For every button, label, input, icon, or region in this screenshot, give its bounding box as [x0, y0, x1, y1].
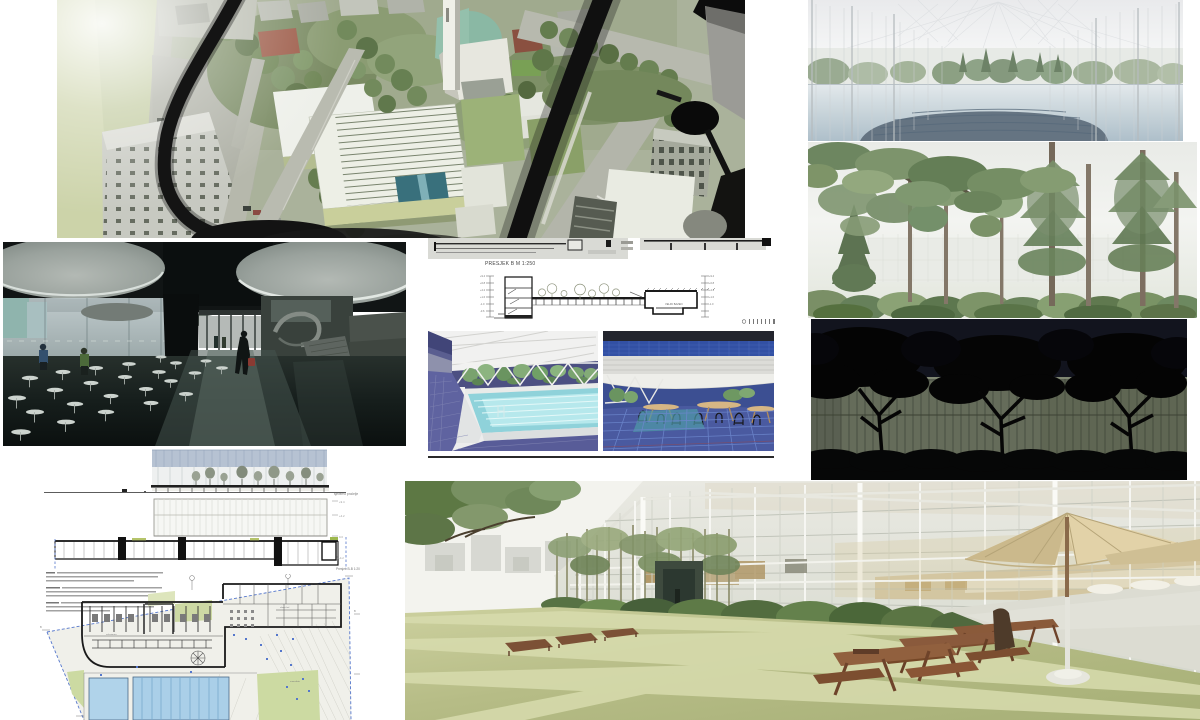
svg-text:+4.2: +4.2 [339, 514, 345, 518]
svg-text:-4.2: -4.2 [339, 556, 344, 560]
svg-text:suncalista: suncalista [290, 680, 301, 683]
svg-text:VELIKI BAZEN: VELIKI BAZEN [665, 302, 683, 306]
svg-text:-3.6: -3.6 [480, 309, 485, 313]
svg-text:+6.8: +6.8 [480, 281, 486, 285]
svg-text:+1.6: +1.6 [480, 295, 486, 299]
svg-text:svlacionice: svlacionice [106, 634, 117, 636]
svg-text:-1.0: -1.0 [480, 302, 485, 306]
svg-text:-1.0: -1.0 [709, 302, 714, 306]
svg-text:+1.6: +1.6 [709, 295, 715, 299]
svg-text:+4.2: +4.2 [480, 288, 486, 292]
svg-text:B: B [40, 625, 42, 629]
svg-text:+4.2: +4.2 [709, 288, 715, 292]
svg-text:B: B [354, 609, 356, 613]
svg-text:+9.4: +9.4 [709, 274, 715, 278]
svg-text:ulazni hol: ulazni hol [280, 607, 290, 609]
svg-text:Presjek B-B 1:200: Presjek B-B 1:200 [336, 567, 360, 571]
svg-text:+9.4: +9.4 [480, 274, 486, 278]
svg-text:+9.4: +9.4 [339, 500, 345, 504]
svg-text:0.0: 0.0 [339, 535, 343, 539]
svg-text:+6.8: +6.8 [709, 281, 715, 285]
